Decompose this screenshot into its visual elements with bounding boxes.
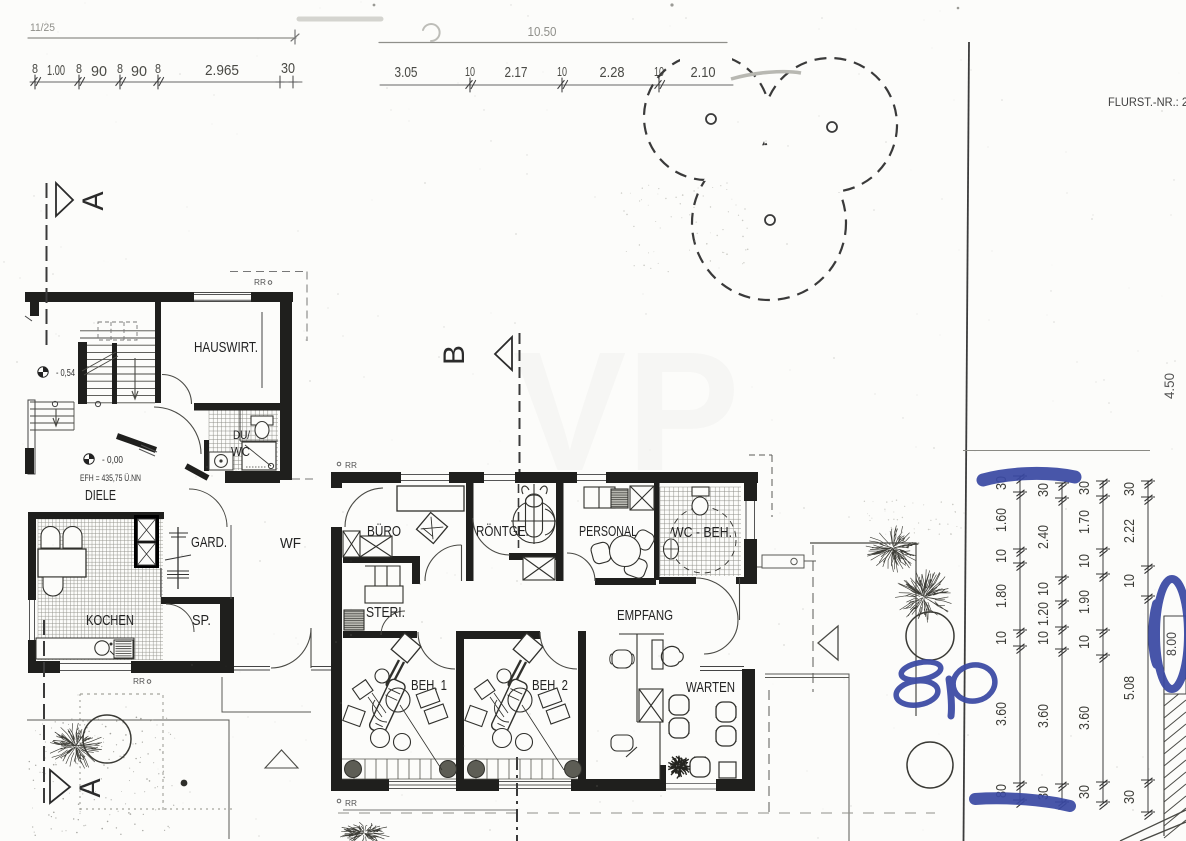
svg-text:RR: RR <box>345 799 357 808</box>
svg-text:STERI.: STERI. <box>366 604 405 621</box>
svg-text:30: 30 <box>1076 785 1093 799</box>
svg-text:RR: RR <box>254 278 266 287</box>
svg-text:10: 10 <box>1035 631 1052 645</box>
svg-text:3.60: 3.60 <box>1035 704 1052 728</box>
svg-text:2.40: 2.40 <box>1035 525 1052 549</box>
svg-text:A: A <box>77 192 110 211</box>
svg-text:30: 30 <box>281 60 295 77</box>
svg-text:WF: WF <box>280 535 301 552</box>
svg-text:10: 10 <box>993 631 1010 645</box>
svg-text:90: 90 <box>131 63 147 80</box>
svg-text:30: 30 <box>1076 481 1093 495</box>
svg-text:1.60: 1.60 <box>993 508 1010 532</box>
svg-text:GARD.: GARD. <box>191 534 227 551</box>
svg-text:1.70: 1.70 <box>1076 510 1093 534</box>
svg-text:8: 8 <box>76 61 82 76</box>
svg-text:11/25: 11/25 <box>30 22 55 34</box>
svg-text:2.28: 2.28 <box>600 64 625 81</box>
svg-text:30: 30 <box>1121 482 1138 496</box>
svg-text:EFH = 435,75 Ü.NN: EFH = 435,75 Ü.NN <box>80 473 141 484</box>
svg-text:8: 8 <box>117 61 123 76</box>
svg-text:A: A <box>74 779 107 798</box>
svg-text:8: 8 <box>155 61 161 76</box>
svg-text:8.00: 8.00 <box>1163 632 1179 656</box>
svg-text:2.17: 2.17 <box>505 64 528 81</box>
svg-text:2.10: 2.10 <box>691 64 716 81</box>
svg-text:- 0,00: - 0,00 <box>102 455 123 466</box>
svg-text:1.20: 1.20 <box>1035 602 1052 626</box>
svg-text:RR: RR <box>345 461 357 470</box>
svg-text:10: 10 <box>993 549 1010 563</box>
svg-text:1.90: 1.90 <box>1076 590 1093 614</box>
svg-text:1.00: 1.00 <box>47 62 65 79</box>
svg-text:5.08: 5.08 <box>1121 676 1138 700</box>
svg-text:10: 10 <box>1035 582 1052 596</box>
svg-text:2.965: 2.965 <box>205 62 239 79</box>
svg-text:DIELE: DIELE <box>85 487 116 504</box>
svg-text:HAUSWIRT.: HAUSWIRT. <box>194 339 258 356</box>
svg-text:3.60: 3.60 <box>1076 706 1093 730</box>
svg-text:4.50: 4.50 <box>1161 373 1177 399</box>
svg-text:10.50: 10.50 <box>528 24 557 39</box>
svg-text:10: 10 <box>465 64 475 79</box>
svg-text:10: 10 <box>1076 635 1093 649</box>
svg-text:WARTEN: WARTEN <box>686 679 735 696</box>
svg-text:SP.: SP. <box>192 612 211 629</box>
svg-text:WC: WC <box>231 444 250 459</box>
svg-text:FLURST.-NR.: 2: FLURST.-NR.: 2 <box>1108 95 1186 109</box>
svg-text:8: 8 <box>32 61 38 76</box>
svg-text:90: 90 <box>91 63 107 80</box>
svg-text:30: 30 <box>1035 483 1052 497</box>
svg-text:- 0,54: - 0,54 <box>56 368 75 379</box>
svg-text:2.22: 2.22 <box>1121 519 1138 543</box>
svg-text:1.80: 1.80 <box>993 584 1010 608</box>
svg-text:30: 30 <box>1121 790 1138 804</box>
svg-text:3.60: 3.60 <box>993 702 1010 726</box>
svg-text:10: 10 <box>1121 574 1138 588</box>
svg-text:EMPFANG: EMPFANG <box>617 607 673 624</box>
svg-text:10: 10 <box>1076 554 1093 568</box>
svg-text:10: 10 <box>557 64 567 79</box>
svg-text:RR: RR <box>133 677 145 686</box>
svg-text:WC - BEH.: WC - BEH. <box>672 524 732 541</box>
svg-text:B: B <box>438 345 471 365</box>
svg-text:KOCHEN: KOCHEN <box>86 612 134 629</box>
svg-text:3.05: 3.05 <box>395 64 418 81</box>
svg-text:DU/: DU/ <box>233 428 251 442</box>
